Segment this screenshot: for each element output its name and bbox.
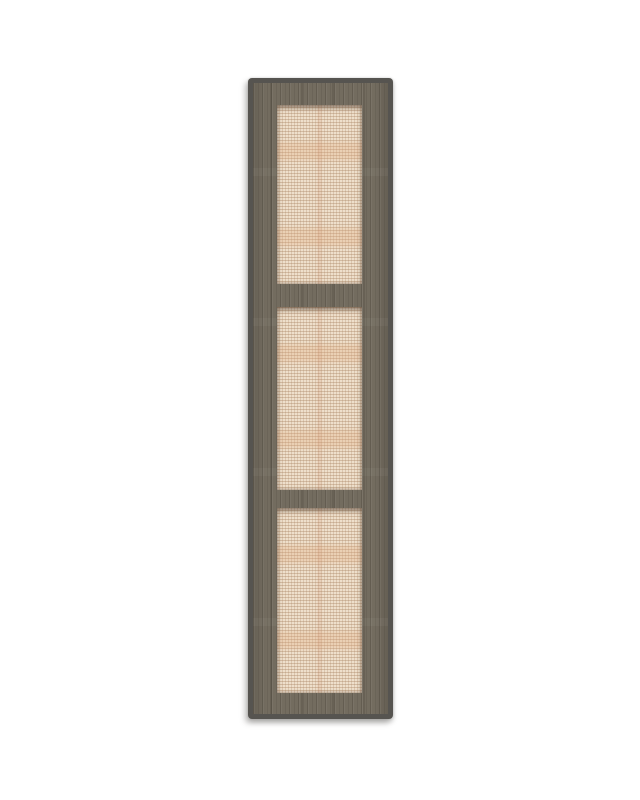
product-image-canvas <box>0 0 640 800</box>
wood-frame <box>253 83 388 714</box>
rattan-panel-bottom <box>277 508 362 693</box>
cabinet-door <box>248 78 393 719</box>
rattan-panel-top <box>277 105 362 284</box>
rattan-panel-middle <box>277 307 362 490</box>
